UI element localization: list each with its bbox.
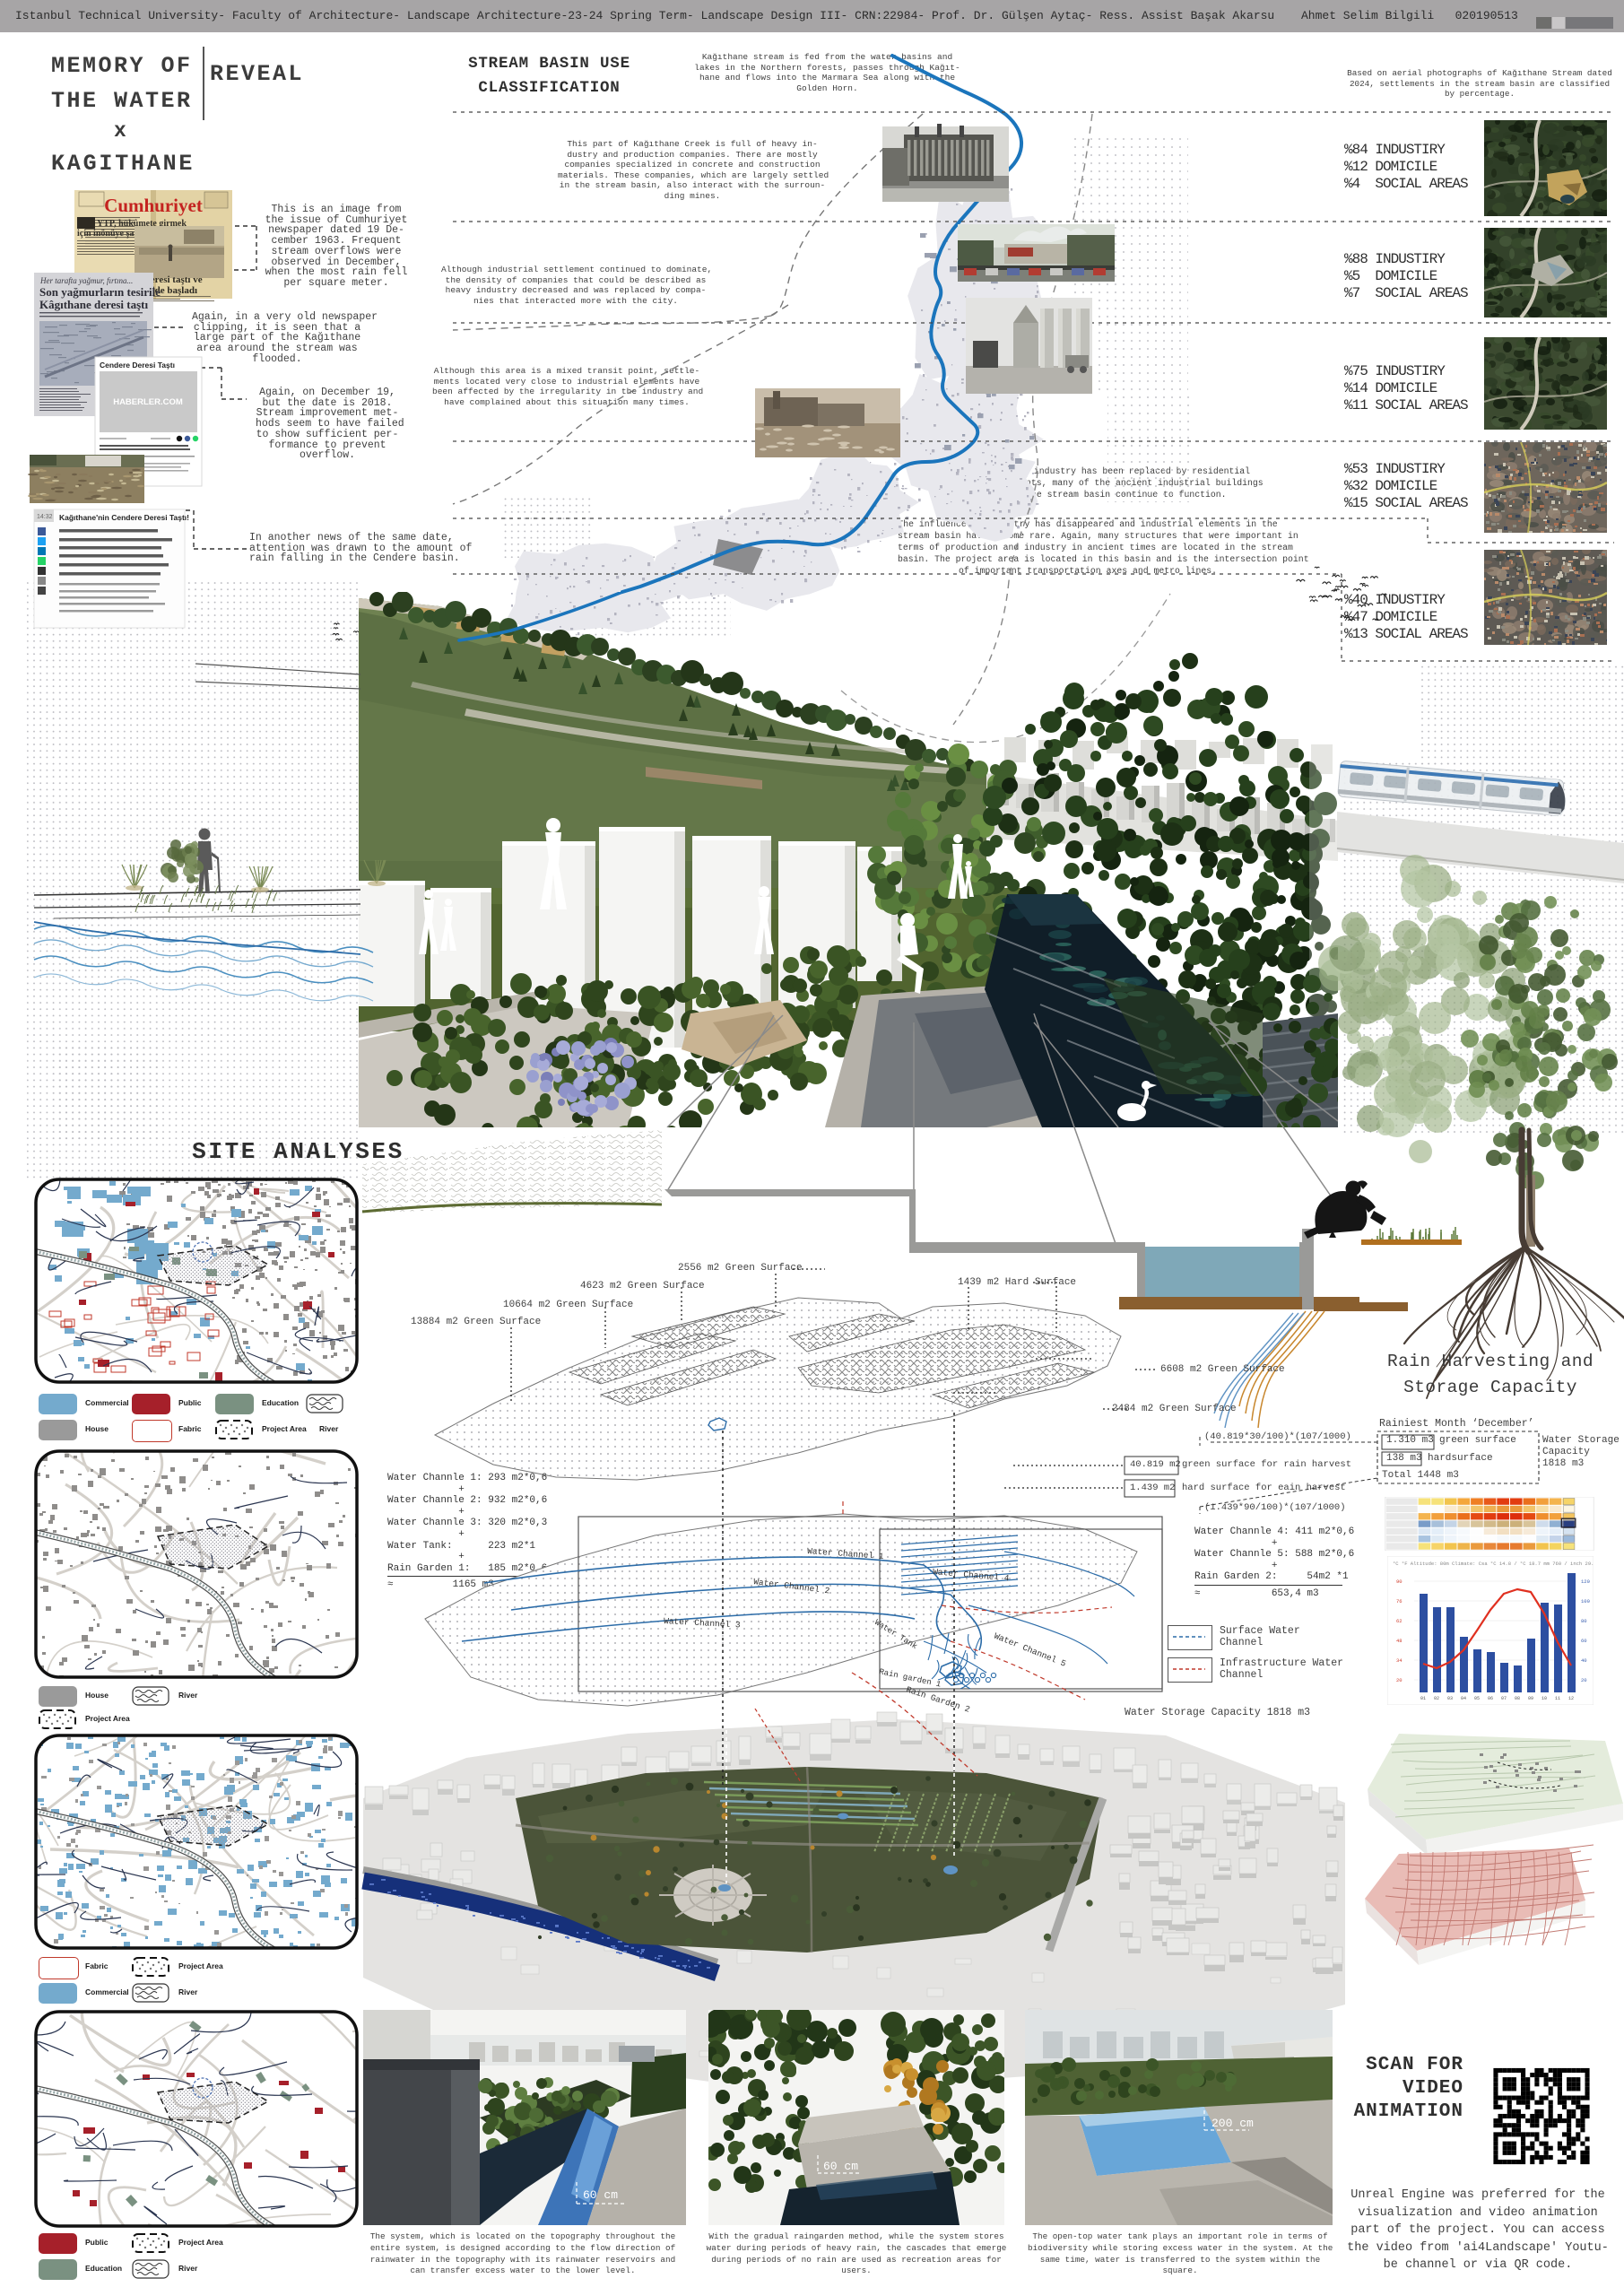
svg-text:60 cm: 60 cm <box>583 2188 618 2202</box>
svg-text:14:32: 14:32 <box>37 514 53 520</box>
svg-text:60 cm: 60 cm <box>823 2160 858 2173</box>
svg-text:Kağıthane'nin Cendere Deresi T: Kağıthane'nin Cendere Deresi Taştı! <box>59 513 189 522</box>
